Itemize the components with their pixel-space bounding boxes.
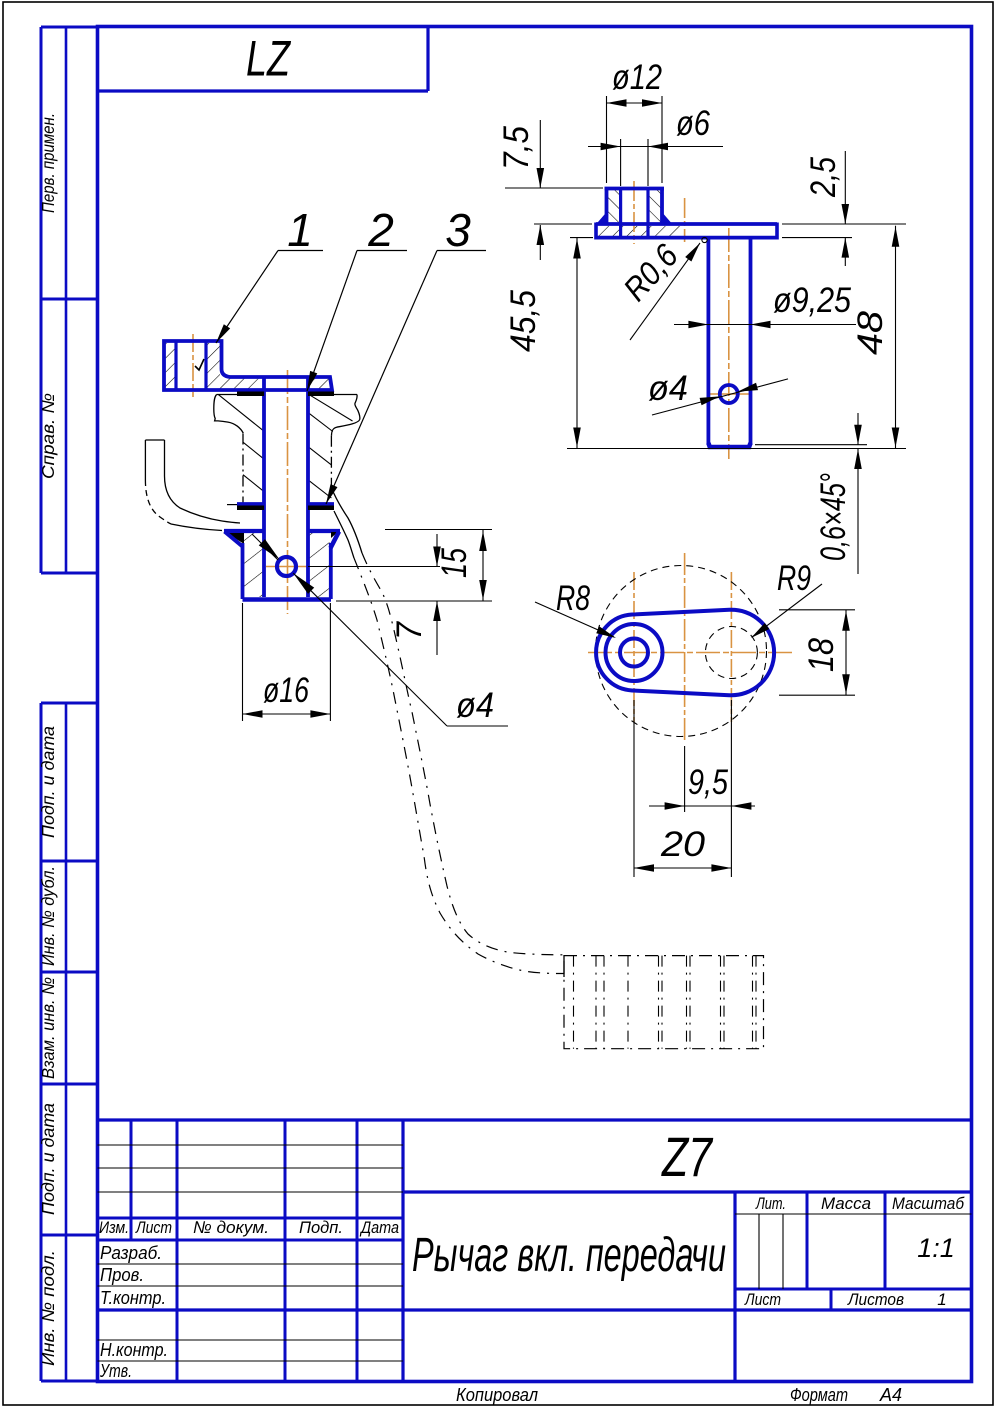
svg-text:7,5: 7,5 bbox=[496, 126, 536, 170]
svg-text:20: 20 bbox=[660, 824, 705, 864]
svg-text:2: 2 bbox=[367, 204, 394, 256]
svg-text:ø9,25: ø9,25 bbox=[773, 280, 851, 320]
svg-text:Утв.: Утв. bbox=[99, 1361, 132, 1381]
svg-text:Подп.: Подп. bbox=[299, 1218, 343, 1237]
svg-text:Дата: Дата bbox=[359, 1218, 399, 1237]
svg-text:Лит.: Лит. bbox=[755, 1194, 786, 1213]
svg-text:Т.контр.: Т.контр. bbox=[100, 1288, 166, 1308]
svg-text:Перв. примен.: Перв. примен. bbox=[38, 113, 58, 213]
svg-text:Формат: Формат bbox=[790, 1385, 848, 1405]
svg-text:1: 1 bbox=[287, 204, 313, 256]
svg-text:A4: A4 bbox=[879, 1385, 902, 1405]
svg-text:LZ: LZ bbox=[246, 31, 291, 87]
svg-text:1: 1 bbox=[937, 1290, 946, 1309]
svg-text:Разраб.: Разраб. bbox=[100, 1243, 162, 1263]
svg-text:Масса: Масса bbox=[821, 1194, 871, 1213]
svg-text:Листов: Листов bbox=[847, 1290, 904, 1309]
svg-text:1:1: 1:1 bbox=[917, 1233, 955, 1263]
svg-text:18: 18 bbox=[801, 638, 841, 672]
svg-text:2,5: 2,5 bbox=[803, 157, 843, 198]
svg-text:ø6: ø6 bbox=[676, 103, 710, 143]
svg-text:15: 15 bbox=[434, 548, 474, 578]
svg-text:Подп. и дата: Подп. и дата bbox=[38, 726, 58, 838]
svg-text:Лист: Лист bbox=[744, 1290, 781, 1309]
svg-text:ø4: ø4 bbox=[456, 685, 494, 725]
svg-text:ø4: ø4 bbox=[648, 368, 688, 408]
svg-text:Копировал: Копировал bbox=[456, 1385, 538, 1405]
svg-text:48: 48 bbox=[850, 311, 890, 355]
svg-text:Рычаг вкл. передачи: Рычаг вкл. передачи bbox=[412, 1229, 726, 1282]
svg-text:Пров.: Пров. bbox=[100, 1265, 144, 1285]
svg-text:R9: R9 bbox=[777, 558, 811, 598]
svg-text:Взам. инв. №: Взам. инв. № bbox=[38, 977, 58, 1079]
svg-text:Лист: Лист bbox=[135, 1218, 172, 1237]
svg-text:Н.контр.: Н.контр. bbox=[100, 1340, 168, 1360]
svg-text:Z7: Z7 bbox=[660, 1125, 713, 1188]
svg-text:ø12: ø12 bbox=[612, 57, 662, 97]
svg-text:7: 7 bbox=[389, 621, 429, 640]
svg-text:Подп. и дата: Подп. и дата bbox=[38, 1103, 58, 1215]
svg-text:Инв. № дубл.: Инв. № дубл. bbox=[38, 866, 58, 966]
svg-text:9,5: 9,5 bbox=[688, 762, 728, 802]
svg-text:45,5: 45,5 bbox=[503, 290, 543, 352]
svg-text:Инв. № подл.: Инв. № подл. bbox=[38, 1250, 58, 1366]
svg-text:R8: R8 bbox=[556, 578, 590, 618]
svg-text:Изм.: Изм. bbox=[99, 1218, 129, 1237]
svg-text:ø16: ø16 bbox=[263, 670, 309, 710]
svg-text:3: 3 bbox=[445, 204, 471, 256]
svg-text:Масштаб: Масштаб bbox=[892, 1194, 965, 1213]
svg-text:0,6×45°: 0,6×45° bbox=[813, 473, 853, 561]
svg-text:№ докум.: № докум. bbox=[193, 1218, 269, 1237]
svg-text:Справ. №: Справ. № bbox=[38, 393, 58, 479]
